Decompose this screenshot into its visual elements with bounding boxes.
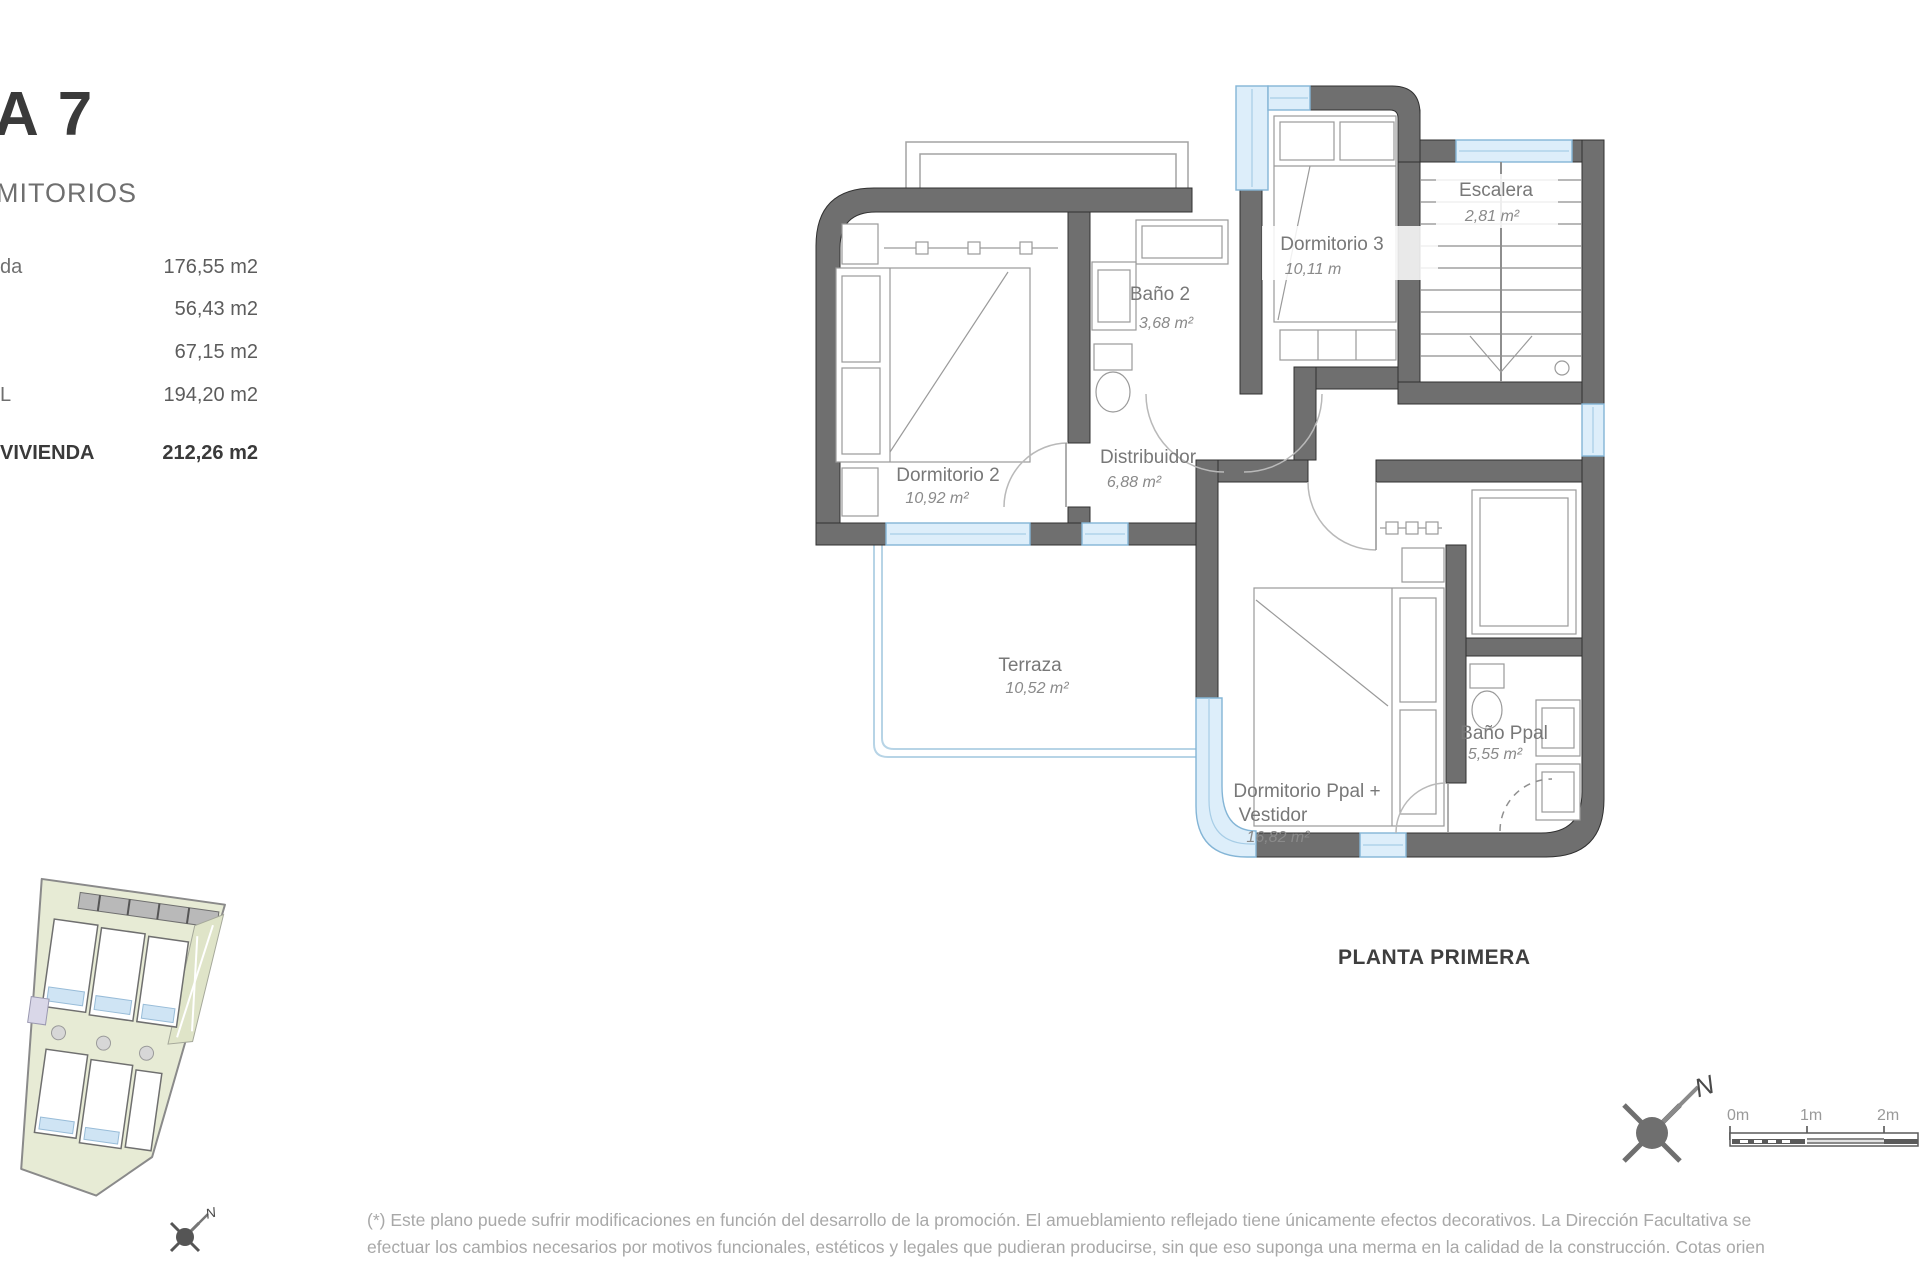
- shower-bano-ppal: [1472, 490, 1576, 634]
- wardrobe-dormitorio2: [884, 242, 1058, 254]
- room-label-dormitorio-ppal-1: Dormitorio Ppal +: [1233, 781, 1380, 802]
- nightstand: [842, 224, 878, 264]
- wardrobe-vestidor: [1380, 522, 1442, 534]
- cabinet-dormitorio3: [1280, 330, 1396, 360]
- site-plan-thumbnail: [0, 879, 225, 1208]
- room-area-terraza: 10,52 m²: [1005, 680, 1069, 697]
- room-label-bano-ppal: Baño Ppal: [1460, 723, 1548, 744]
- scale-tick-0m: 0m: [1727, 1107, 1749, 1124]
- pergola-outline: [906, 142, 1188, 188]
- room-label-terraza: Terraza: [998, 655, 1062, 676]
- floorplan-drawing: Dormitorio 2 10,92 m² Baño 2 3,68 m² Dor…: [0, 0, 1920, 1280]
- site-plan-north-arrow-icon: N: [171, 1203, 219, 1251]
- scale-tick-2m: 2m: [1877, 1107, 1899, 1124]
- vanity-bano-ppal: [1536, 700, 1580, 820]
- room-label-escalera: Escalera: [1459, 180, 1533, 201]
- room-label-dormitorio2: Dormitorio 2: [896, 465, 999, 486]
- floorplan-page: { "sidebar": { "title": "A 7", "subtitle…: [0, 0, 1920, 1280]
- room-area-bano2: 3,68 m²: [1139, 315, 1194, 332]
- scale-bar: 0m 1m 2m: [1727, 1107, 1918, 1146]
- room-label-dormitorio-ppal-2: Vestidor: [1239, 805, 1308, 826]
- site-plan-north-label: N: [204, 1203, 219, 1221]
- nightstand: [1402, 548, 1444, 582]
- room-area-dormitorio3: 10,11 m: [1285, 261, 1342, 278]
- scale-tick-1m: 1m: [1800, 1107, 1822, 1124]
- room-label-dormitorio3: Dormitorio 3: [1280, 234, 1383, 255]
- room-area-dormitorio-ppal: 16,82 m²: [1246, 829, 1310, 846]
- toilet-bano2: [1094, 344, 1132, 412]
- room-label-bano2: Baño 2: [1130, 284, 1190, 305]
- room-area-bano-ppal: 5,55 m²: [1468, 746, 1523, 763]
- north-label: N: [1691, 1069, 1718, 1103]
- toilet-bano-ppal: [1470, 664, 1504, 729]
- room-area-dormitorio2: 10,92 m²: [905, 490, 969, 507]
- nightstand: [842, 468, 878, 516]
- bed-dormitorio3: [1274, 116, 1396, 322]
- room-label-distribuidor: Distribuidor: [1100, 447, 1197, 468]
- north-arrow-icon: N: [1624, 1069, 1718, 1161]
- bathtub-bano2: [1136, 220, 1228, 264]
- room-area-escalera: 2,81 m²: [1464, 208, 1520, 225]
- bed-dormitorio2: [836, 268, 1030, 462]
- terrace-outline: [874, 545, 1196, 757]
- room-area-distribuidor: 6,88 m²: [1107, 474, 1162, 491]
